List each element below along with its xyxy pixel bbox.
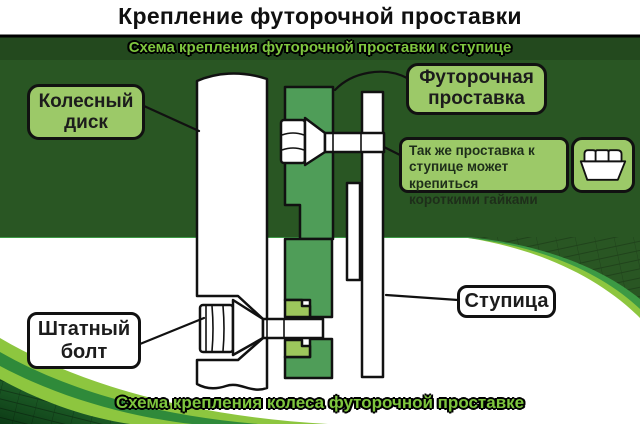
note-line-1: Так же проставка к	[409, 143, 564, 159]
note-line-3: короткими гайками	[409, 192, 564, 208]
label-wheel-disk: Колесный диск	[27, 84, 145, 140]
label-stock-bolt-text: Штатный болт	[30, 318, 138, 364]
leader-stock-bolt	[140, 318, 204, 344]
label-wheel-disk-text: Колесный диск	[30, 91, 142, 134]
label-spacer-text: Футорочная проставка	[409, 68, 544, 110]
nut-icon-box	[571, 137, 635, 193]
bottom-banner-text: Схема крепления колеса футорочной проста…	[0, 393, 640, 413]
leader-hub	[386, 295, 458, 300]
stock-bolt-head	[200, 305, 233, 352]
title-divider	[0, 35, 640, 38]
hub-inner-plate-shape	[347, 183, 360, 280]
page-title: Крепление футорочной проставки	[0, 3, 640, 33]
nut-icon	[578, 145, 628, 185]
label-hub-text: Ступица	[465, 290, 549, 313]
label-spacer: Футорочная проставка	[406, 63, 547, 115]
label-stock-bolt: Штатный болт	[27, 312, 141, 369]
upper-bolt-head	[281, 120, 305, 163]
infographic: Крепление футорочной проставки Схема кре…	[0, 0, 640, 424]
threaded-insert-bottom-shape	[285, 340, 310, 357]
note-line-2: ступице может крепиться	[409, 159, 564, 192]
label-hub: Ступица	[457, 285, 556, 318]
stock-bolt-shaft	[263, 319, 323, 338]
note-callout: Так же проставка к ступице может крепить…	[399, 137, 569, 193]
upper-bolt-shaft	[325, 133, 384, 152]
top-banner-text: Схема крепления футорочной проставки к с…	[0, 39, 640, 56]
threaded-insert-top-shape	[285, 300, 310, 317]
